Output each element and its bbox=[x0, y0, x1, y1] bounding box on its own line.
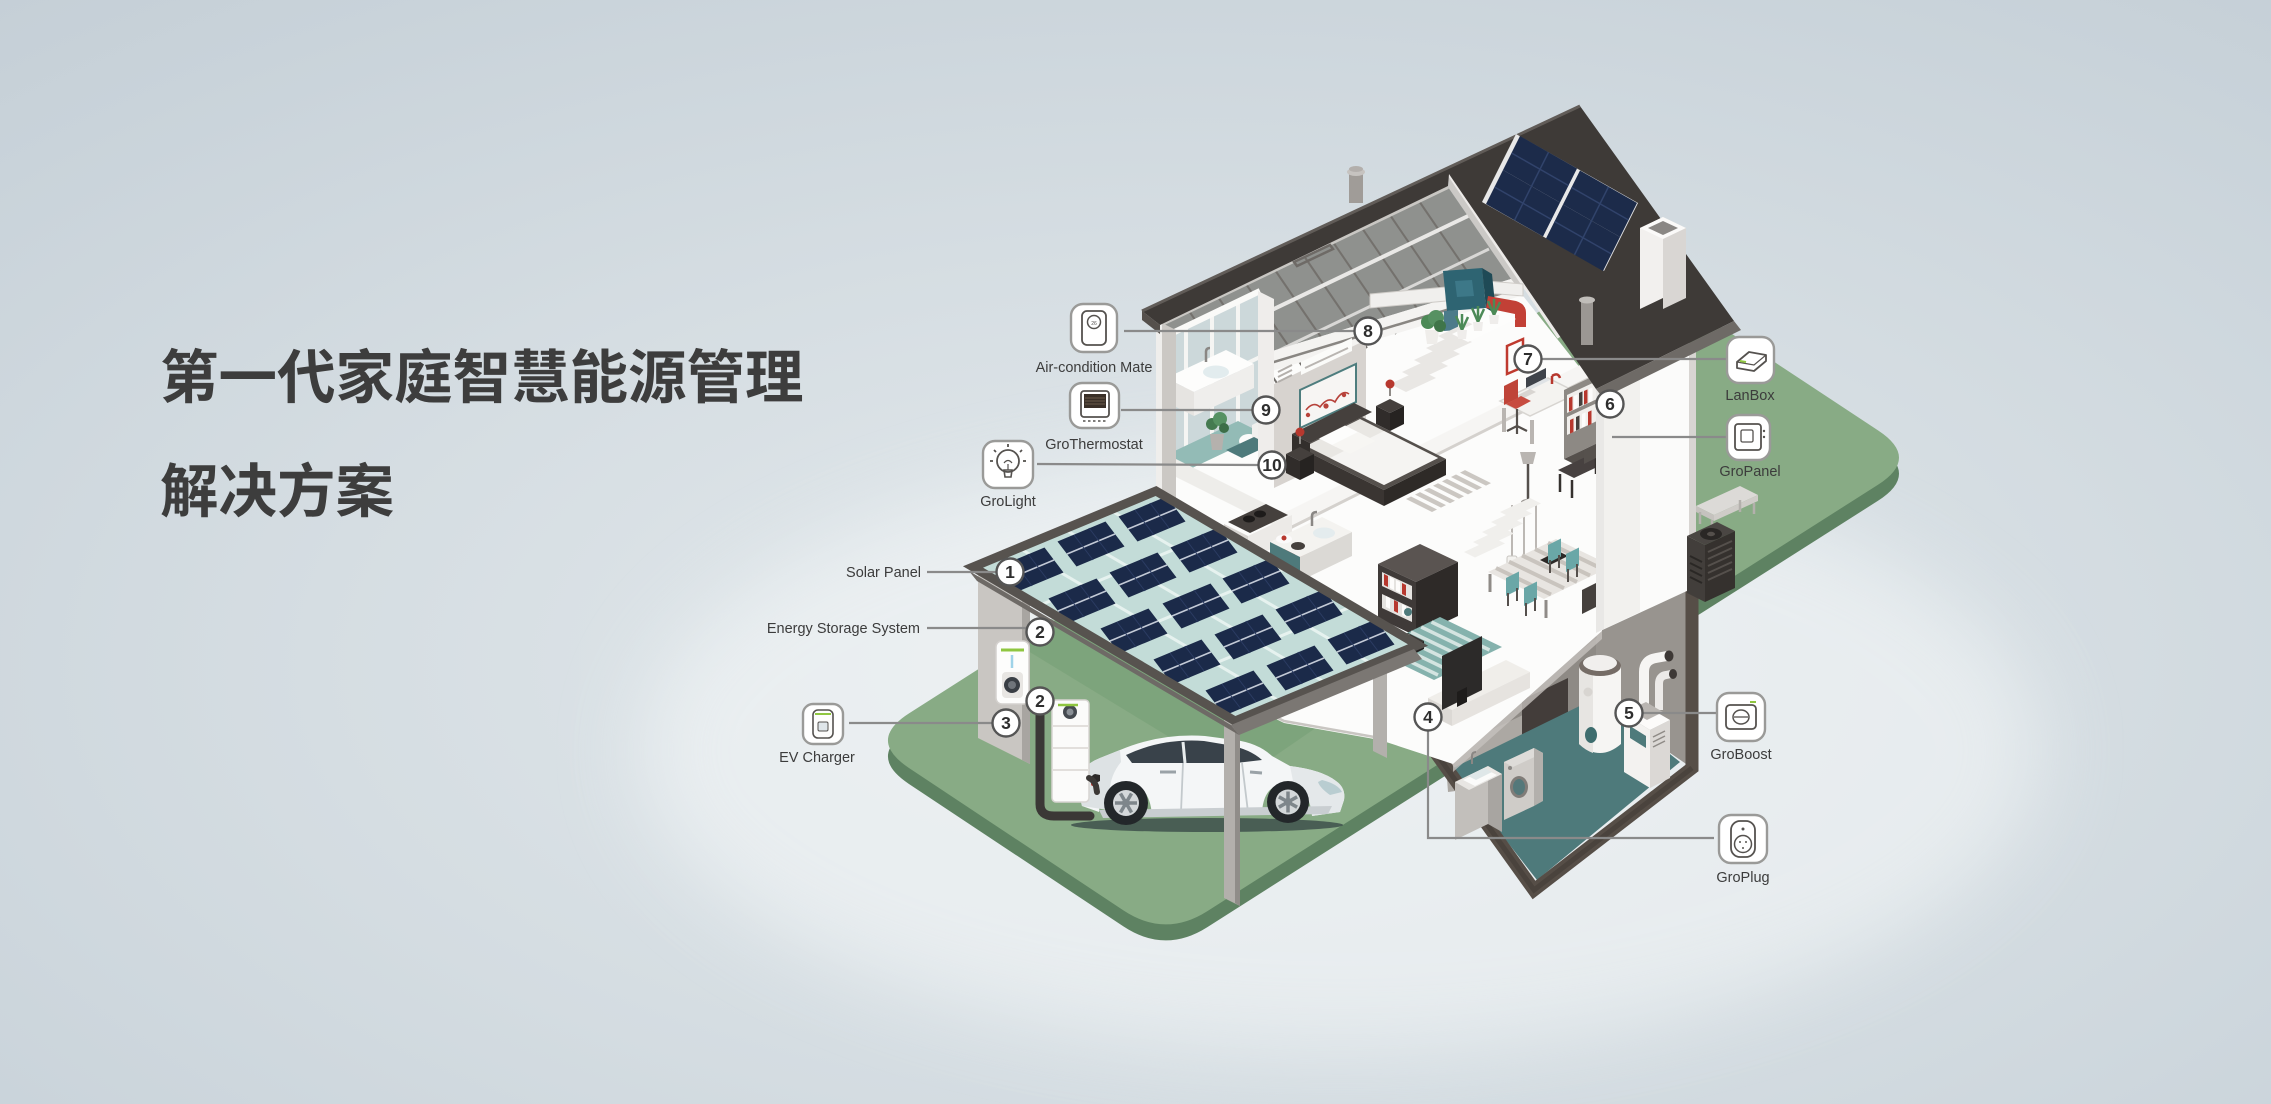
svg-text:2: 2 bbox=[1035, 691, 1045, 711]
svg-text:GroPlug: GroPlug bbox=[1716, 870, 1769, 886]
svg-text:6: 6 bbox=[1605, 394, 1615, 414]
svg-text:3: 3 bbox=[1001, 713, 1011, 733]
svg-text:GroLight: GroLight bbox=[980, 494, 1036, 510]
svg-text:2: 2 bbox=[1035, 622, 1045, 642]
svg-text:4: 4 bbox=[1423, 707, 1433, 727]
svg-text:GroBoost: GroBoost bbox=[1710, 747, 1771, 763]
svg-text:5: 5 bbox=[1624, 703, 1634, 723]
svg-text:GroThermostat: GroThermostat bbox=[1045, 437, 1143, 453]
svg-text:Solar Panel: Solar Panel bbox=[846, 565, 921, 581]
svg-text:10: 10 bbox=[1262, 455, 1282, 475]
svg-text:8: 8 bbox=[1363, 321, 1373, 341]
svg-text:LanBox: LanBox bbox=[1725, 388, 1775, 404]
svg-text:GroPanel: GroPanel bbox=[1719, 464, 1780, 480]
svg-text:EV Charger: EV Charger bbox=[779, 750, 855, 766]
svg-text:26: 26 bbox=[1091, 321, 1097, 327]
svg-text:Air-condition Mate: Air-condition Mate bbox=[1036, 360, 1153, 376]
svg-text:9: 9 bbox=[1261, 400, 1271, 420]
svg-text:7: 7 bbox=[1523, 349, 1533, 369]
svg-text:Energy Storage System: Energy Storage System bbox=[767, 621, 920, 637]
svg-text:1: 1 bbox=[1005, 562, 1015, 582]
